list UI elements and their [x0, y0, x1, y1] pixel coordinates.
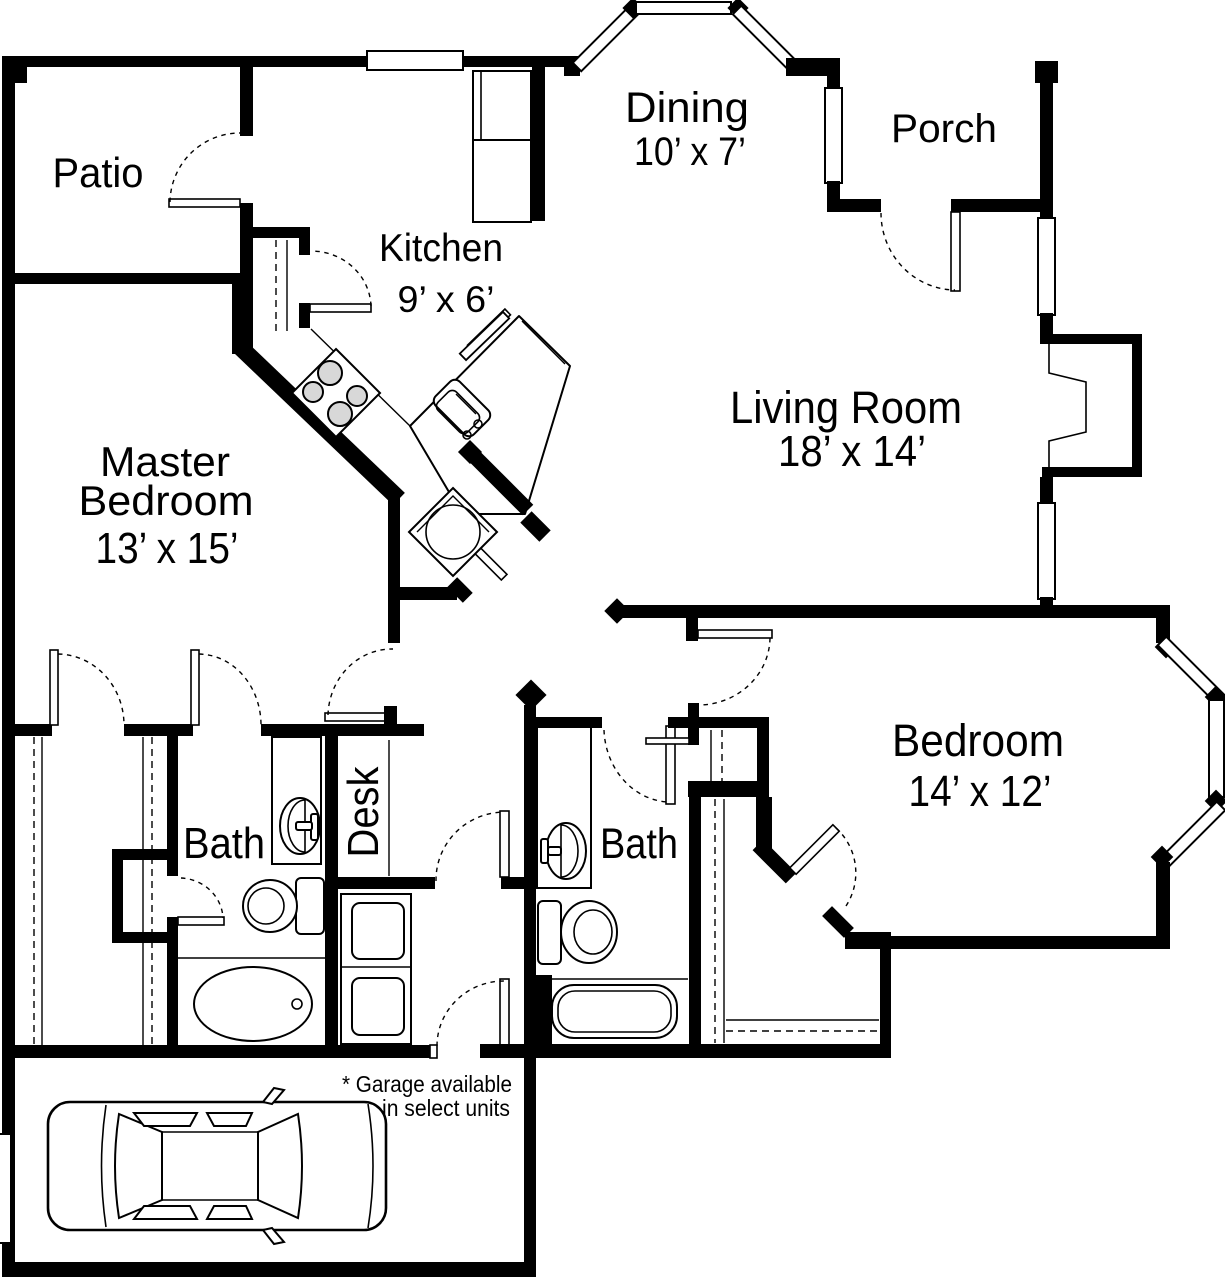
svg-text:Porch: Porch: [891, 107, 997, 151]
svg-text:Patio: Patio: [53, 149, 144, 196]
svg-text:9’ x 6’: 9’ x 6’: [398, 279, 495, 320]
svg-text:14’ x 12’: 14’ x 12’: [909, 767, 1052, 816]
svg-text:Kitchen: Kitchen: [379, 227, 503, 270]
svg-text:Dining: Dining: [625, 84, 749, 132]
svg-text:Bedroom: Bedroom: [79, 477, 254, 524]
svg-text:Bath: Bath: [600, 820, 678, 868]
svg-text:Bath: Bath: [183, 819, 265, 868]
svg-text:Living Room: Living Room: [730, 382, 962, 433]
svg-text:Bedroom: Bedroom: [892, 715, 1064, 766]
svg-text:* Garage available: * Garage available: [342, 1071, 512, 1097]
svg-text:in select units: in select units: [382, 1095, 510, 1121]
svg-text:10’ x 7’: 10’ x 7’: [634, 130, 746, 174]
svg-text:18’ x 14’: 18’ x 14’: [778, 427, 926, 476]
svg-text:Desk: Desk: [339, 766, 388, 858]
svg-text:13’ x 15’: 13’ x 15’: [96, 524, 239, 573]
